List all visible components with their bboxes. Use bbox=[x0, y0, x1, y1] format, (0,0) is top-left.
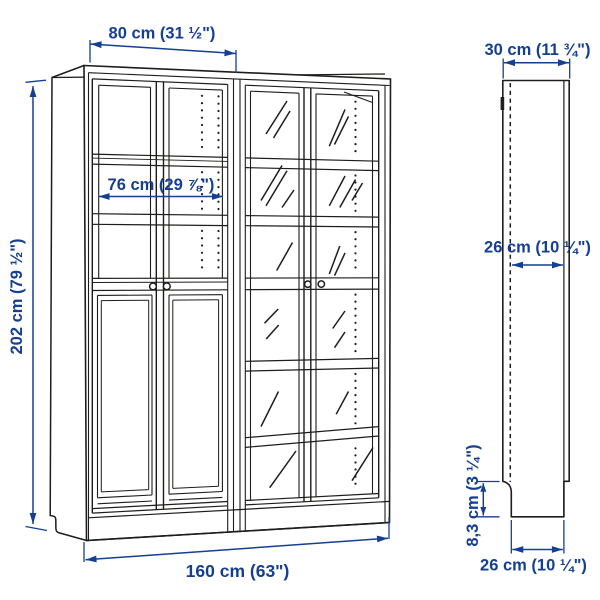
svg-text:160 cm (63"): 160 cm (63") bbox=[186, 561, 290, 581]
svg-text:76 cm (29 ⅞"): 76 cm (29 ⅞") bbox=[108, 176, 215, 194]
svg-text:80 cm (31 ½"): 80 cm (31 ½") bbox=[109, 25, 216, 43]
svg-text:8,3 cm (3 ¼"): 8,3 cm (3 ¼") bbox=[464, 444, 482, 546]
svg-text:202 cm (79 ½"): 202 cm (79 ½") bbox=[8, 238, 26, 354]
svg-text:30 cm (11 ¾"): 30 cm (11 ¾") bbox=[485, 41, 591, 59]
svg-text:26 cm (10 ¼"): 26 cm (10 ¼") bbox=[484, 239, 591, 257]
svg-text:26 cm (10 ¼"): 26 cm (10 ¼") bbox=[480, 557, 587, 575]
